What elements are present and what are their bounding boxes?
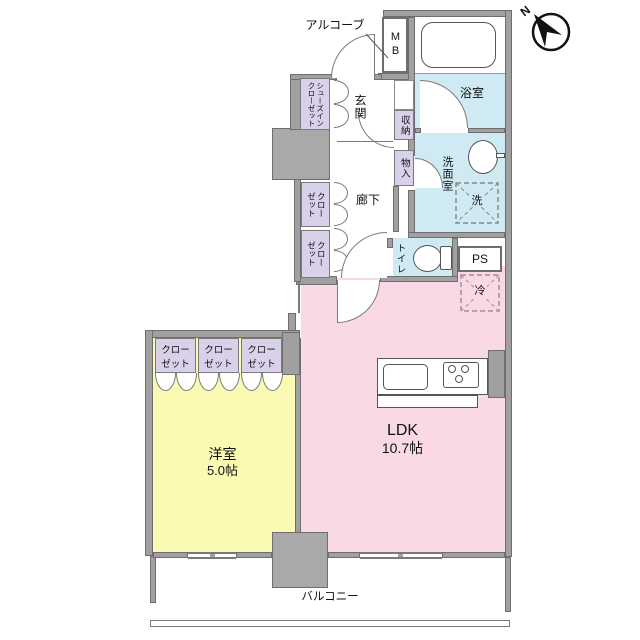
ldk-label: LDK: [340, 422, 465, 440]
wall: [387, 238, 393, 248]
balcony-railing: [150, 620, 510, 627]
wall: [282, 332, 300, 375]
closet-row-2: クロー ゼット: [198, 338, 239, 373]
refrigerator-label-text: 冷: [474, 285, 487, 297]
closet-label-2: ゼット: [204, 359, 233, 370]
pipe-space-label: PS: [472, 252, 488, 266]
closet-label-2: ゼット: [247, 359, 276, 370]
wall: [145, 330, 153, 556]
column: [272, 128, 330, 180]
wall: [145, 330, 300, 338]
alcove-leader-line: [362, 32, 392, 62]
bathtub: [421, 22, 496, 68]
wall: [374, 74, 382, 80]
closet-label-1: クロー: [316, 192, 326, 218]
entrance-label: 玄関: [354, 94, 366, 120]
closet-hall-upper: クロー ゼット: [301, 182, 330, 227]
wall: [408, 190, 415, 238]
wall: [236, 552, 272, 558]
wall: [380, 276, 458, 282]
bath-label: 浴室: [448, 87, 496, 101]
storage-lower: 物入: [394, 150, 414, 186]
wall: [415, 128, 421, 133]
western-room-size-label: 5.0帖: [165, 464, 280, 479]
refrigerator-label: 冷: [460, 285, 500, 298]
folding-door: [334, 228, 348, 250]
wall: [468, 128, 505, 133]
closet-label-1: クロー: [204, 345, 233, 356]
closet-label-1: クロー: [161, 345, 190, 356]
closet-label-2: ゼット: [161, 359, 190, 370]
toilet-tank: [440, 246, 452, 270]
closet-label-2: ゼット: [306, 192, 316, 218]
shoe-in-closet-label-2: クローゼット: [306, 82, 315, 127]
ldk-floor: [301, 278, 505, 552]
window: [360, 552, 442, 559]
entrance-step-line: [337, 141, 393, 142]
kitchen-counter-lower: [377, 395, 478, 408]
closet-label-1: クロー: [247, 345, 276, 356]
stove-burner: [448, 365, 456, 373]
stove-burner: [461, 365, 469, 373]
corridor-label: 廊下: [346, 194, 390, 208]
window: [188, 552, 236, 559]
wall: [393, 186, 399, 232]
washroom-label: 洗面室: [441, 156, 452, 192]
floor-plan: シューズイン クローゼット クロー ゼット クロー ゼット 収納 物入 クロー …: [0, 0, 640, 640]
closet-label-1: クロー: [316, 241, 326, 267]
wall: [505, 10, 512, 557]
western-room-label: 洋室: [165, 446, 280, 462]
wall: [294, 178, 301, 282]
wall-niche: [394, 80, 414, 110]
wall: [383, 10, 512, 17]
kitchen-side-wall: [488, 350, 505, 398]
folding-door: [334, 80, 349, 104]
column: [272, 532, 328, 588]
wall: [505, 557, 511, 612]
window-mullion: [398, 554, 403, 557]
window-mullion: [210, 554, 215, 557]
storage-upper: 収納: [394, 110, 414, 140]
laundry-label-text: 洗: [471, 195, 484, 207]
pipe-space: PS: [458, 246, 502, 272]
closet-row-1: クロー ゼット: [155, 338, 196, 373]
ldk-size-label: 10.7帖: [340, 440, 465, 456]
closet-hall-lower: クロー ゼット: [301, 230, 330, 278]
closet-row-3: クロー ゼット: [241, 338, 282, 373]
closet-label-2: ゼット: [306, 241, 316, 267]
storage-upper-label: 収納: [399, 115, 409, 136]
toilet-label: トイレ: [395, 243, 405, 275]
washbasin: [468, 140, 498, 174]
wall: [442, 552, 505, 558]
laundry-label: 洗: [455, 195, 499, 208]
shoe-in-closet: シューズイン クローゼット: [300, 78, 330, 130]
alcove-label: アルコーブ: [298, 19, 372, 33]
folding-door: [334, 104, 349, 128]
wall: [150, 556, 156, 603]
wall: [153, 552, 188, 558]
storage-lower-label: 物入: [399, 158, 409, 179]
wall: [328, 552, 360, 558]
toilet-bowl: [413, 245, 442, 272]
washbasin-faucet: [496, 153, 505, 158]
balcony-label: バルコニー: [290, 591, 370, 604]
shoe-in-closet-label-1: シューズイン: [315, 82, 324, 127]
wall-thin-line: [298, 282, 300, 313]
stove-burner: [455, 375, 463, 383]
kitchen-sink: [383, 364, 428, 390]
